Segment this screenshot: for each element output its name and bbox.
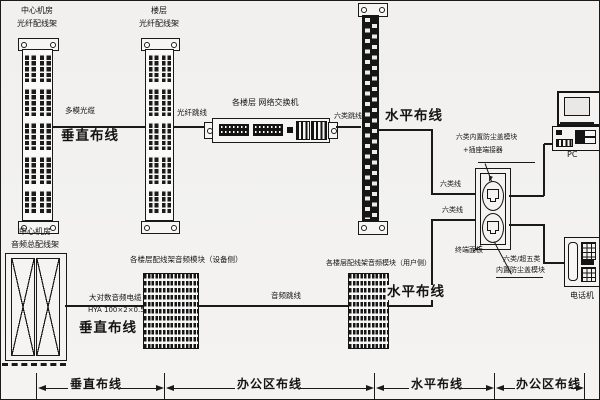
fiber-port-group	[25, 156, 51, 184]
network-switch	[212, 118, 330, 143]
cabling-diagram: 中心机房 光纤配线架 楼层 光纤配线架 多模光缆 垂直布线 光纤跳线 各楼层 网…	[0, 0, 600, 400]
screw-icon	[361, 7, 367, 13]
switch-right-ear	[328, 122, 338, 139]
cat6-lower-label: 六类线	[442, 207, 463, 215]
monitor-icon	[557, 91, 600, 126]
dimension-line	[298, 388, 366, 389]
dimension-arrow-right	[576, 385, 584, 391]
screw-icon	[331, 128, 337, 134]
pc-drive-slot	[575, 137, 596, 144]
switch-vent-grille	[311, 121, 327, 140]
fiber-port-group	[149, 122, 171, 150]
dimension-line	[45, 388, 68, 389]
fiber-patch-line	[174, 126, 204, 128]
dimension-arrow-right	[366, 385, 374, 391]
cat6-lower-line	[431, 219, 477, 221]
phone-handset	[568, 242, 578, 281]
patch-panel-bottom-bracket	[358, 221, 388, 235]
fiber-port-group	[149, 88, 171, 116]
rj45-jack-icon	[487, 221, 499, 231]
screw-icon	[171, 225, 177, 231]
phone-wire-h2	[544, 262, 566, 264]
fiber-port-group	[149, 156, 171, 184]
dimension-line	[460, 388, 486, 389]
screw-icon	[144, 225, 150, 231]
screw-icon	[361, 225, 367, 231]
cable-spec-label: HYA 100×2×0.5	[88, 307, 145, 315]
vertical-cabling-label-top: 垂直布线	[61, 129, 119, 144]
dimension-segment4-label: 办公区布线	[516, 378, 581, 391]
central-fiber-rack	[22, 49, 53, 221]
dimension-tick	[584, 373, 585, 399]
panel-ports-right	[372, 24, 377, 222]
switch-port-block	[219, 124, 249, 136]
audio-patch-label: 音频跳线	[271, 292, 301, 300]
fiber-port-group	[25, 122, 51, 150]
central-rack-title-line2: 光纤配线架	[5, 20, 69, 29]
switch-port-block	[253, 124, 283, 136]
screw-icon	[50, 42, 56, 48]
screw-icon	[144, 42, 150, 48]
cat6-patch-line	[336, 126, 361, 128]
lower-module-underline	[496, 277, 543, 278]
callout-underline	[478, 162, 535, 163]
fiber-port-group	[25, 54, 51, 82]
horizontal-run-drop	[431, 129, 433, 195]
mdf-dashed-base	[2, 363, 66, 366]
phone-keypad	[581, 242, 596, 260]
telephone-label: 电话机	[570, 292, 594, 301]
fiber-port-group	[25, 190, 51, 214]
screw-icon	[171, 42, 177, 48]
phone-display-bar	[581, 260, 594, 265]
screw-icon	[379, 7, 385, 13]
phone-wire-h1	[509, 224, 544, 226]
audio-mdf-title-line2: 音频总配线架	[3, 241, 67, 250]
cat6-upper-label: 六类线	[440, 181, 461, 189]
multimode-cable-label: 多模光缆	[65, 107, 95, 115]
jack-module-label-line1: 六类内置防尘盖模块	[456, 134, 517, 141]
horizontal-cabling-label-bottom: 水平布线	[387, 285, 445, 300]
floor-rack-title-line2: 光纤配线架	[129, 20, 189, 29]
monitor-screen	[564, 97, 590, 116]
multipair-cable-label: 大对数音频电缆	[89, 294, 142, 302]
pc-case-button	[556, 130, 562, 135]
fiber-port-group	[25, 88, 51, 116]
user-block-label: 各楼层配线架音频模块（用户侧）	[326, 260, 431, 268]
pc-drive-slot	[575, 130, 596, 137]
fiber-patch-label: 光纤跳线	[177, 109, 207, 117]
switch-vent-grille	[296, 121, 310, 140]
horizontal-run-line	[379, 129, 433, 131]
rj45-jack-icon	[487, 189, 499, 199]
mdf-termination-block	[11, 258, 35, 356]
screw-icon	[379, 225, 385, 231]
lower-module-label-line1: 六类/超五类	[503, 256, 540, 264]
floor-rack-bottom-plate	[141, 221, 180, 234]
phone-keypad	[581, 267, 596, 282]
dimension-line	[173, 388, 235, 389]
floor-rack-title-line1: 楼层	[129, 7, 189, 16]
equipment-block-label: 各楼层配线架音频模块（设备侧）	[130, 256, 243, 264]
phone-wire-v	[543, 224, 545, 264]
screw-icon	[21, 42, 27, 48]
cat6-patch-panel	[362, 15, 379, 221]
fiber-port-group	[149, 54, 171, 82]
telephone-icon	[564, 237, 600, 287]
monitor-base	[560, 122, 594, 125]
audio-module-user-side	[348, 273, 389, 349]
audio-module-equipment-side	[143, 273, 199, 349]
fiber-port-group	[149, 190, 171, 214]
audio-patch-line	[197, 305, 348, 307]
dimension-line	[503, 388, 515, 389]
vertical-cabling-label-bottom: 垂直布线	[79, 321, 137, 336]
cat6-patch-label: 六类跳线	[334, 113, 362, 121]
audio-mdf-title-line1: 中心机房	[3, 228, 67, 237]
panel-ports-left	[365, 18, 370, 219]
pc-case-vent	[556, 139, 573, 147]
floor-fiber-rack	[145, 49, 174, 221]
pc-label: PC	[567, 151, 577, 160]
dimension-arrow-right	[156, 385, 164, 391]
switch-uplink-port	[287, 127, 293, 133]
dimension-segment2-label: 办公区布线	[237, 378, 302, 391]
horizontal-cabling-label-top: 水平布线	[385, 109, 443, 124]
switch-label: 各楼层 网络交换机	[232, 99, 299, 108]
cat6-upper-line	[431, 193, 477, 195]
pc-case-icon	[552, 126, 600, 151]
central-rack-title-line1: 中心机房	[5, 7, 69, 16]
pc-wire-h1	[509, 195, 544, 197]
dimension-segment1-label: 垂直布线	[70, 378, 122, 391]
pc-wire-v	[543, 144, 545, 196]
jack-module-label-line2: +插座端接器	[463, 147, 503, 154]
lower-module-label-line2: 内置防尘盖模块	[496, 267, 545, 275]
terminal-panel-label: 终端面板	[455, 247, 483, 255]
dimension-arrow-right	[486, 385, 494, 391]
mdf-termination-block	[36, 258, 60, 356]
dimension-segment3-label: 水平布线	[411, 378, 463, 391]
dimension-line	[118, 388, 156, 389]
voice-horizontal-line	[387, 305, 433, 307]
dimension-line	[383, 388, 409, 389]
